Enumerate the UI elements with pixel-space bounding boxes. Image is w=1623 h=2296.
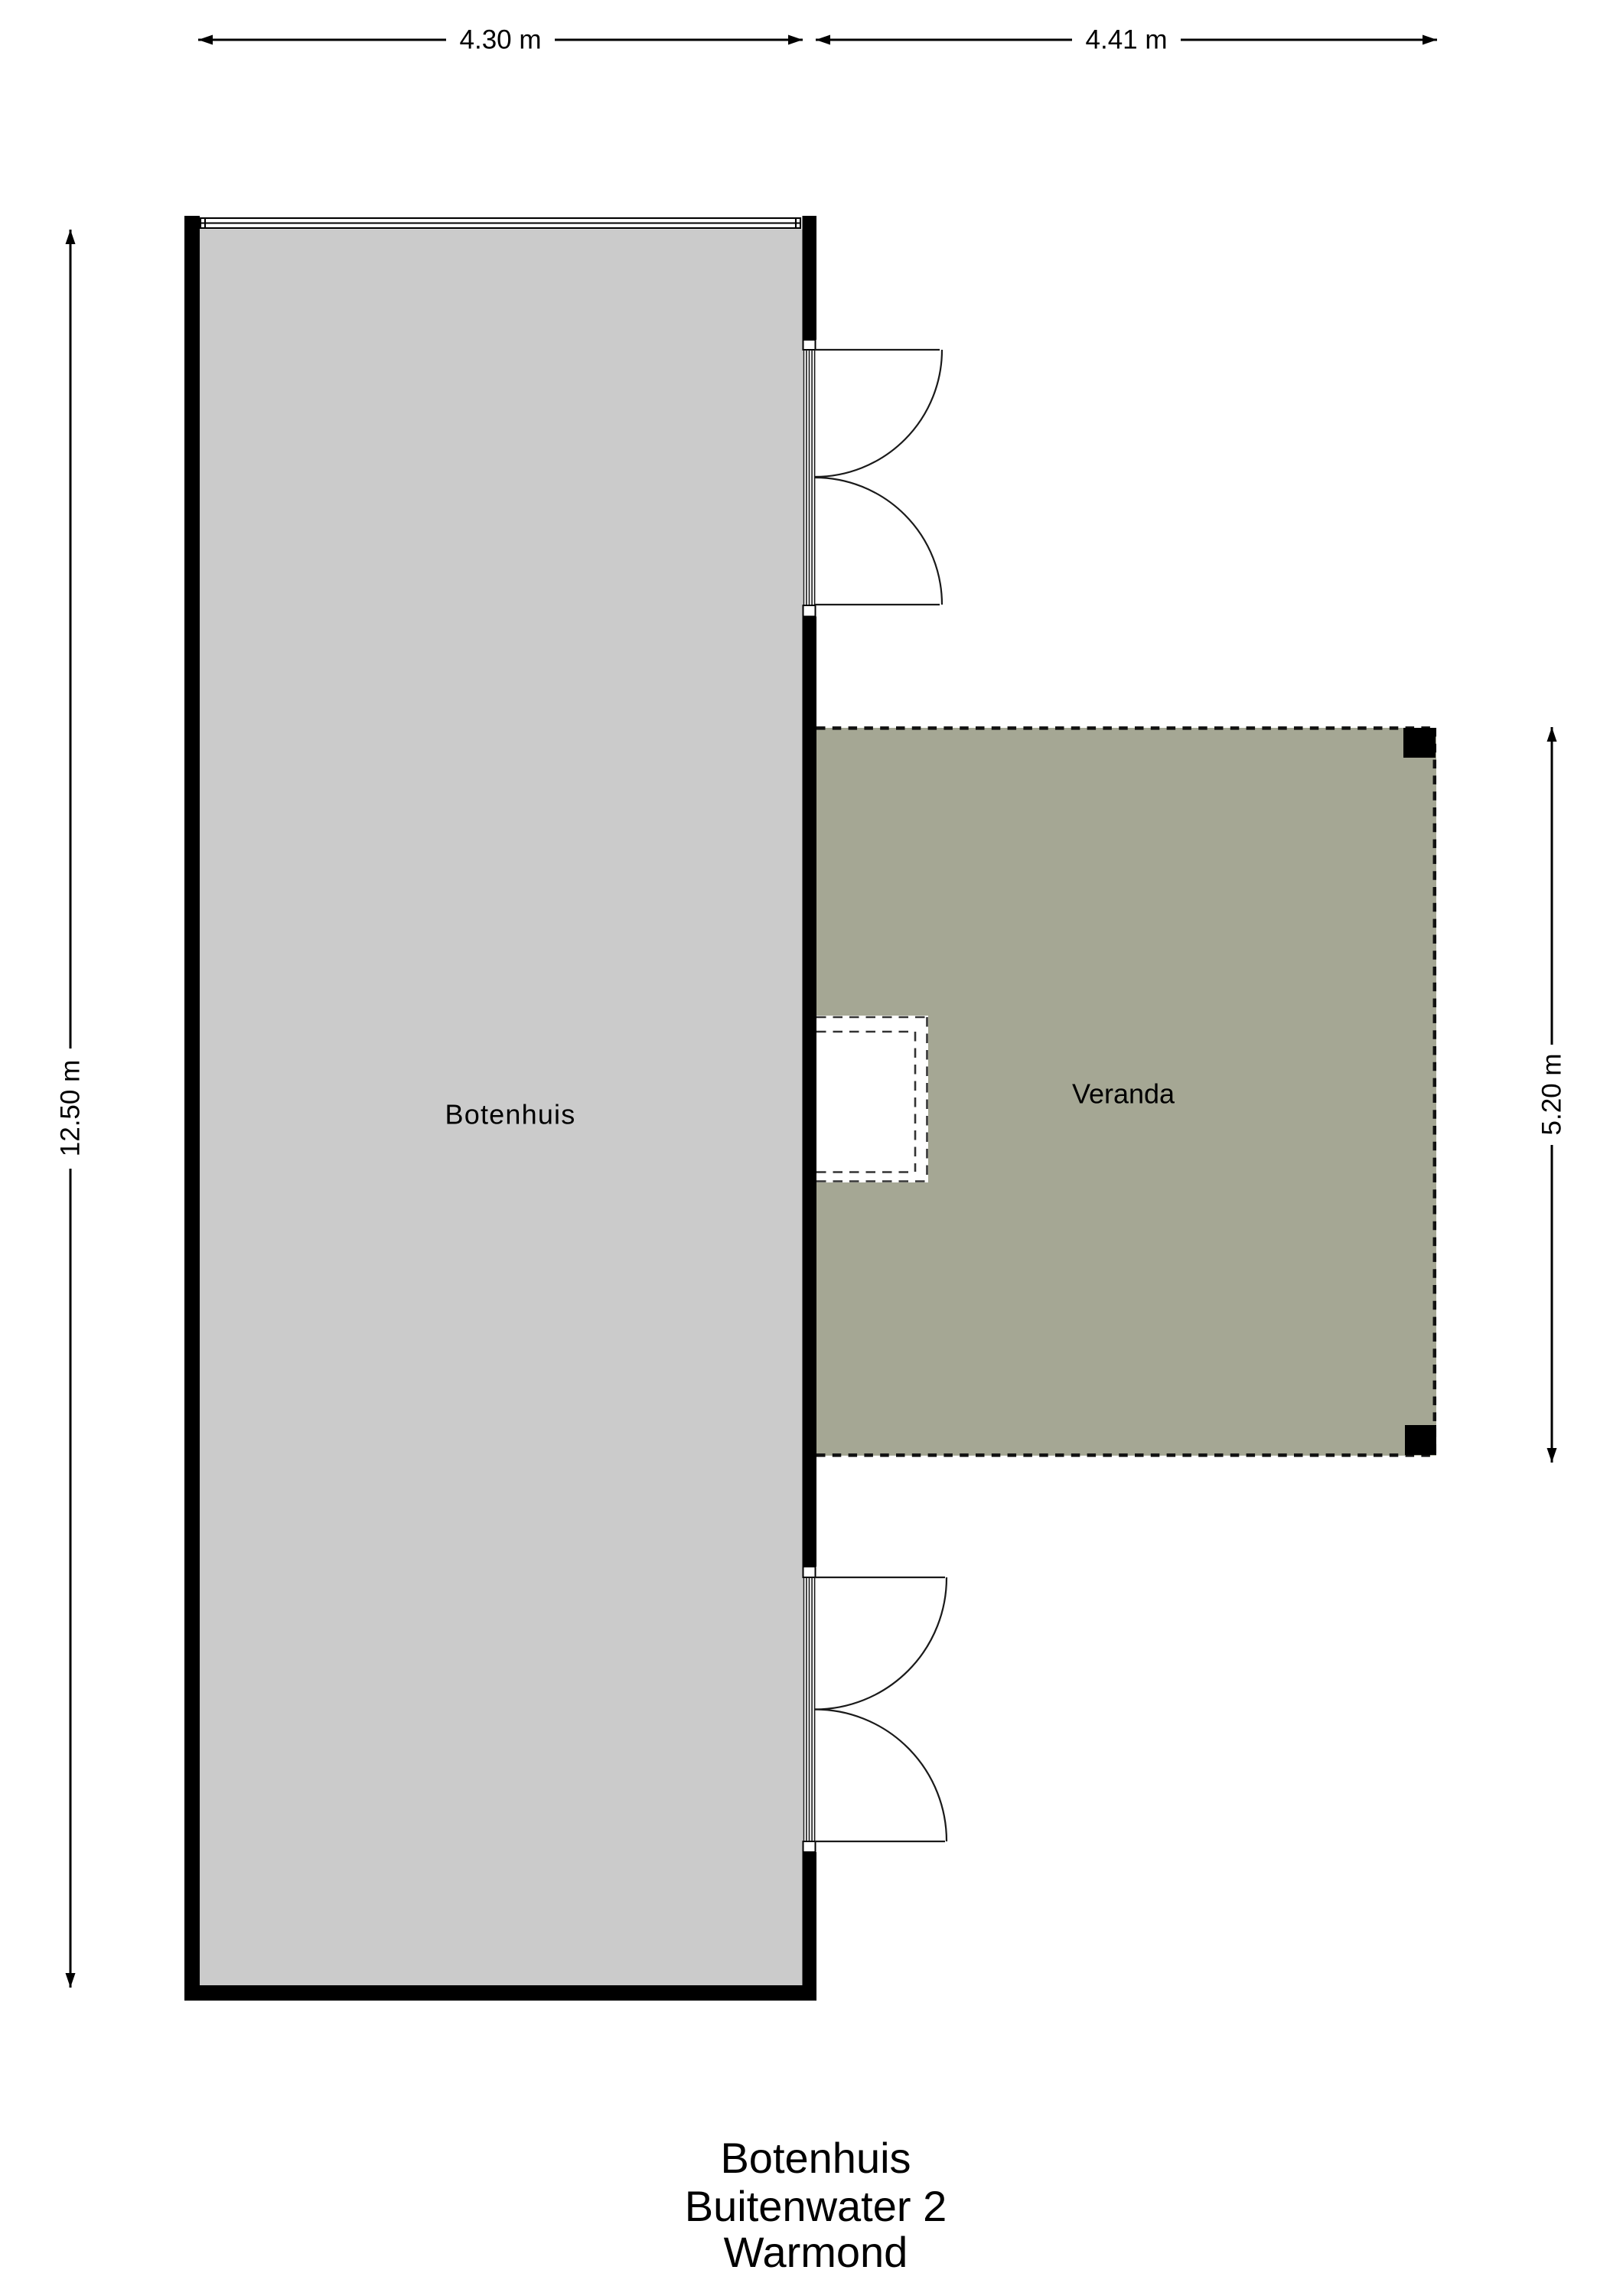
svg-text:Buitenwater 2: Buitenwater 2 — [685, 2182, 947, 2230]
svg-text:5.20 m: 5.20 m — [1537, 1054, 1567, 1136]
svg-text:12.50 m: 12.50 m — [56, 1060, 86, 1156]
svg-text:4.30 m: 4.30 m — [460, 25, 542, 55]
svg-text:Warmond: Warmond — [724, 2228, 908, 2276]
svg-text:Botenhuis: Botenhuis — [445, 1099, 576, 1130]
svg-text:Veranda: Veranda — [1072, 1078, 1175, 1110]
svg-text:4.41 m: 4.41 m — [1086, 25, 1168, 55]
svg-text:Botenhuis: Botenhuis — [720, 2134, 911, 2182]
